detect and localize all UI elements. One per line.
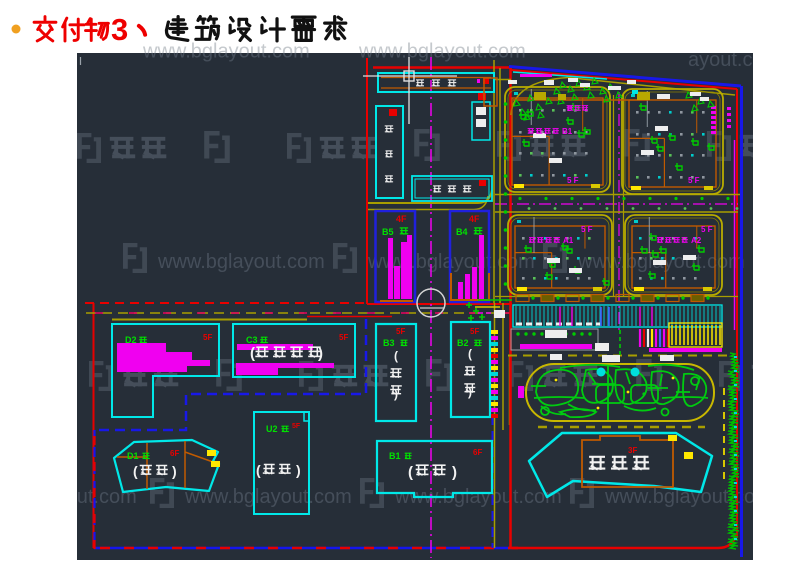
- svg-text:5F: 5F: [339, 333, 348, 342]
- svg-text:5F: 5F: [470, 327, 479, 336]
- svg-text:4F: 4F: [469, 214, 480, 224]
- svg-text:U2: U2: [266, 424, 278, 434]
- svg-text:): ): [468, 385, 472, 399]
- svg-text:B5: B5: [382, 227, 394, 237]
- svg-text:www.bglayout.com: www.bglayout.com: [0, 486, 137, 508]
- svg-text:(: (: [256, 462, 261, 478]
- svg-text:(: (: [468, 347, 472, 361]
- svg-text:): ): [296, 462, 301, 478]
- svg-text:B4: B4: [456, 227, 468, 237]
- svg-text:): ): [394, 387, 398, 401]
- svg-text:A2: A2: [691, 236, 702, 245]
- svg-text:3F: 3F: [628, 446, 637, 455]
- svg-text:5F: 5F: [203, 333, 212, 342]
- svg-text:): ): [452, 464, 457, 481]
- svg-text:5 F: 5 F: [581, 225, 593, 234]
- svg-text:5 F: 5 F: [688, 176, 700, 185]
- svg-text:(: (: [250, 345, 255, 362]
- svg-text:5F: 5F: [292, 423, 301, 430]
- svg-text:B2: B2: [457, 338, 469, 348]
- svg-text:3: 3: [111, 12, 128, 47]
- svg-text:4F: 4F: [396, 214, 407, 224]
- svg-text:5F: 5F: [396, 327, 405, 336]
- svg-text:D1: D1: [127, 451, 139, 461]
- svg-text:B3: B3: [383, 338, 395, 348]
- svg-text:B1: B1: [389, 451, 401, 461]
- svg-text:6F: 6F: [473, 448, 482, 457]
- svg-text:(: (: [394, 349, 398, 363]
- svg-text:B1: B1: [562, 127, 573, 136]
- svg-text:(: (: [408, 464, 413, 481]
- svg-text:A1: A1: [563, 236, 574, 245]
- svg-text:ayout.c: ayout.c: [688, 49, 752, 71]
- svg-text:B: B: [567, 106, 572, 113]
- svg-text:5 F: 5 F: [567, 176, 579, 185]
- svg-text:6F: 6F: [170, 449, 179, 458]
- svg-text:): ): [172, 463, 177, 479]
- svg-text:5 F: 5 F: [701, 225, 713, 234]
- svg-text:(: (: [133, 463, 138, 479]
- svg-text:www.bglayout.com: www.bglayout.com: [157, 251, 325, 273]
- svg-text:C3: C3: [246, 335, 258, 345]
- svg-text:): ): [318, 345, 323, 362]
